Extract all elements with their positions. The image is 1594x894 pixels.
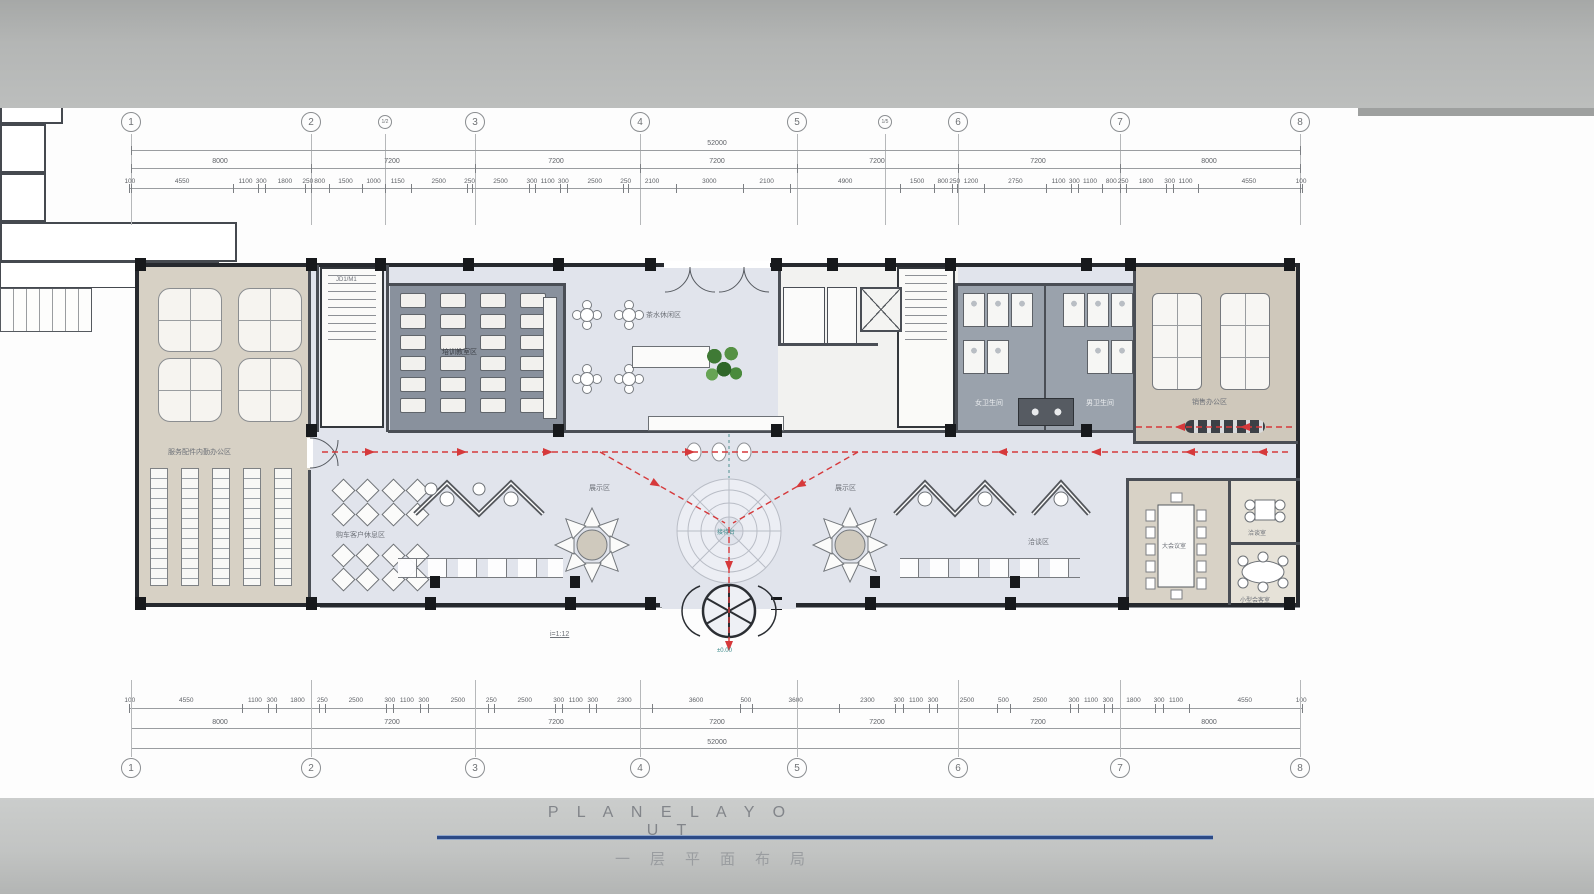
label-meeting-room: 大会议室: [1162, 541, 1186, 550]
zigzag-display-left: [415, 483, 543, 514]
label-left-office: 服务配件内勤办公区: [168, 447, 231, 457]
reception-table: [1245, 500, 1285, 522]
label-center-feature: 接待台: [717, 527, 735, 536]
label-toilet-women: 女卫生间: [975, 398, 1003, 408]
label-ramp-slope: i=1:12: [550, 631, 569, 638]
west-office-door: [307, 438, 338, 468]
floor-plan-sheet: 121/23451/567852000800072007200720072007…: [0, 0, 1594, 894]
label-sales-office: 销售办公区: [1192, 397, 1227, 407]
label-display-right: 展示区: [835, 483, 856, 493]
label-negotiation: 洽谈区: [1028, 537, 1049, 547]
label-display-left: 展示区: [589, 483, 610, 493]
small-meeting-table: [1238, 552, 1288, 592]
label-tea: 茶水休闲区: [646, 310, 681, 320]
sheet-title-cn: 一层平面布局: [575, 848, 865, 869]
label-toilet-men: 男卫生间: [1086, 398, 1114, 408]
title-accent-rule: [437, 836, 1213, 839]
label-rest-area: 购车客户休息区: [336, 530, 385, 540]
label-reception-room: 洽谈室: [1248, 528, 1266, 537]
flower-display-left: [555, 508, 629, 582]
label-training: 培训教室区: [442, 347, 477, 357]
sheet-title-en: P L A N E L A Y O U T: [540, 804, 800, 840]
zigzag-display-right: [895, 483, 1089, 514]
label-stair-tag: JD1/M1: [336, 277, 357, 283]
label-small-meeting: 小型会客室: [1240, 595, 1270, 604]
north-entrance-doors: [664, 261, 770, 292]
plan-graphics: [0, 0, 1594, 894]
label-entry-level: ±0.00: [717, 648, 732, 654]
flower-display-right: [813, 508, 887, 582]
circulation-arrows: [365, 423, 1267, 651]
